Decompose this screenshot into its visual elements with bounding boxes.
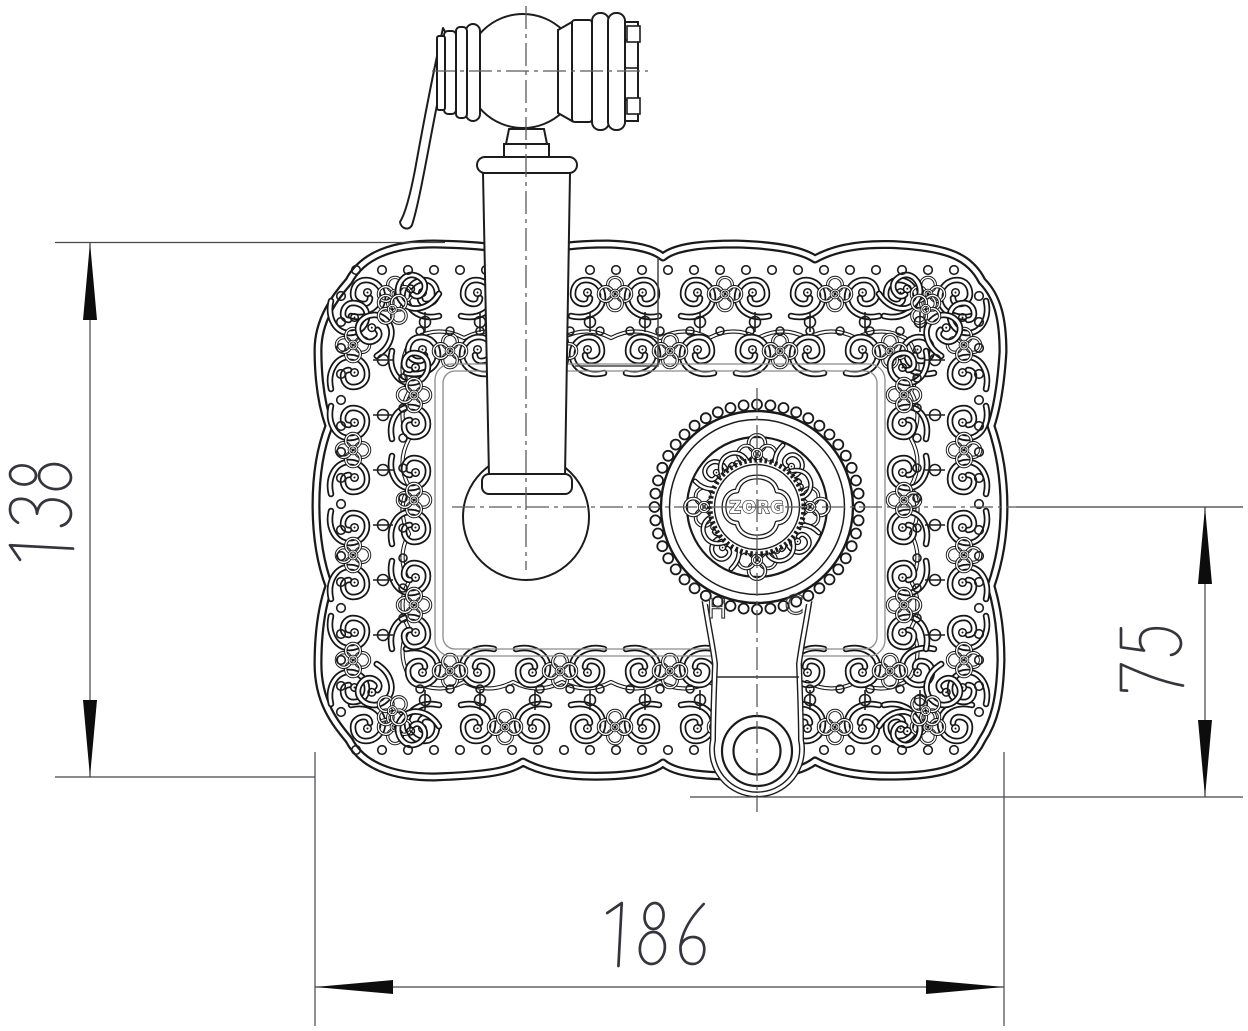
dim-height-value xyxy=(10,462,73,563)
drawing-canvas: ZORG H C xyxy=(0,0,1248,1031)
dim-width-value xyxy=(604,903,706,966)
dim-offset-value xyxy=(1121,626,1183,693)
technical-drawing: ZORG H C xyxy=(0,0,1248,1031)
cold-label: C xyxy=(785,590,804,621)
dimension-width xyxy=(315,752,1004,1026)
hot-label: H xyxy=(707,594,727,625)
